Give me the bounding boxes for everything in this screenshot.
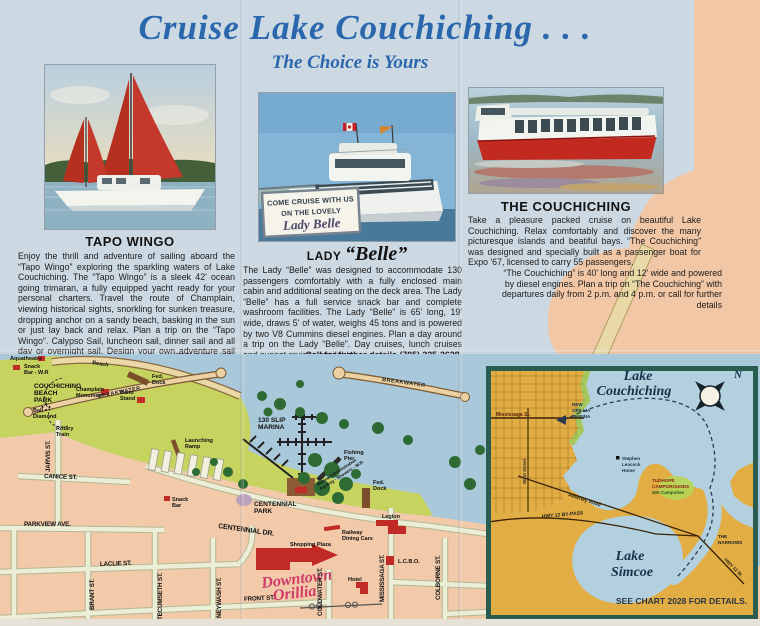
inset-label-simcoe-1: Lake <box>615 549 645 564</box>
map-label-shopping-plaza: Shopping Plaza <box>290 542 332 548</box>
inset-title-2: Couchiching <box>597 384 672 399</box>
inset-label-tudhope-3: 400 Campsites <box>652 490 685 495</box>
inset-label-simcoe-2: Simcoe <box>611 565 653 580</box>
scan-bottom-edge <box>0 619 760 626</box>
map-label-hotel: Hotel <box>348 577 362 583</box>
map-label-fed-dock-n-2: Dock <box>152 380 166 386</box>
map-label-rotary-2: Train <box>56 432 70 438</box>
inset-label-narrows-2: NARROWS <box>718 540 742 545</box>
inset-label-tudhope-2: CAMPGROUNDS <box>652 484 689 489</box>
sign-line-3: Lady Belle <box>282 215 341 233</box>
map-label-legion: Legion <box>382 514 401 520</box>
inset-label-leacock-1: Stephen <box>622 456 640 461</box>
couchiching-photo <box>468 87 664 194</box>
map-label-park-1: COUCHICHING <box>34 383 81 390</box>
lady-belle-caption-name: “Belle” <box>345 243 407 265</box>
couchiching-description: Take a pleasure packed cruise on beautif… <box>468 215 701 268</box>
inset-label-marina-2: ORILLIA <box>572 408 591 413</box>
street-label-colborne: COLBORNE ST. <box>435 555 442 600</box>
page-title: Cruise Lake Couchiching . . . <box>0 8 730 48</box>
map-label-park-2: BEACH <box>34 390 58 397</box>
stadium-oval <box>236 494 252 506</box>
inset-label-leacock-2: Leacock <box>622 462 641 467</box>
map-label-marina-1: 130 SLIP <box>258 417 286 424</box>
map-label-centennial-park-2: PARK <box>254 508 272 515</box>
lady-belle-description: The Lady “Belle” was designed to accommo… <box>243 265 462 360</box>
street-label-neywash: NEYWASH ST. <box>216 577 223 618</box>
map-label-centennial-park-1: CENTENNIAL <box>254 501 297 508</box>
map-label-park-3: PARK <box>34 397 52 404</box>
map-label-snack-bar-wr-2: Bar - W.R <box>24 370 48 376</box>
map-label-launching-ramp-2: Ramp <box>185 444 201 450</box>
map-label-snack-bar-s-2: Bar <box>172 503 182 509</box>
brochure-page: Cruise Lake Couchiching . . . The Choice… <box>0 0 760 626</box>
inset-area-map: N Lake Couchiching Mississaga St. NEW OR… <box>486 366 758 620</box>
street-label-laclie: LACLIE ST. <box>100 560 132 568</box>
inset-title-1: Lake <box>623 369 653 384</box>
map-label-aquatheatre: Aquatheatre <box>10 356 42 362</box>
inset-label-see-chart: SEE CHART 2028 FOR DETAILS. <box>616 596 747 606</box>
map-label-marina-2: MARINA <box>258 424 285 431</box>
street-label-brant: BRANT ST. <box>89 578 96 610</box>
come-cruise-sign: COME CRUISE WITH US ON THE LOVELY Lady B… <box>262 188 360 237</box>
couchiching-illustration <box>469 88 664 194</box>
sailboat-illustration <box>45 65 215 229</box>
map-label-lcbo: L.C.B.O. <box>398 559 420 565</box>
tapo-wingo-caption: TAPO WINGO <box>44 234 216 249</box>
couchiching-caption: THE COUCHICHING <box>468 199 664 214</box>
inset-label-marina-3: MARINA <box>572 414 591 419</box>
fold-crease-horizontal <box>0 350 760 353</box>
inset-label-mississaga: Mississaga St. <box>496 412 531 418</box>
lady-belle-illustration: COME CRUISE WITH US ON THE LOVELY Lady B… <box>259 93 456 242</box>
inset-label-narrows-1: THE <box>718 534 727 539</box>
inset-label-west-street: West Street <box>522 458 527 484</box>
canada-flag-icon <box>343 123 356 131</box>
couchiching-description-wrap: “The Couchiching” is 40' long and 12' wi… <box>500 268 722 310</box>
street-label-coldwater: COLDWATER ST. <box>317 567 324 616</box>
lady-belle-caption-prefix: LADY <box>307 249 341 263</box>
leacock-marker <box>616 456 620 460</box>
inset-label-leacock-3: Home <box>622 468 635 473</box>
street-label-jarvis: JARVIS ST. <box>45 440 52 472</box>
map-label-railway-2: Dining Cars <box>342 536 373 542</box>
map-label-ball-diamond-2: Diamond <box>33 414 57 420</box>
inset-label-marina-1: NEW <box>572 402 583 407</box>
street-label-tecumseth: TECUMSETH ST. <box>157 572 164 620</box>
map-label-fed-dock-s-2: Dock <box>373 486 387 492</box>
street-label-canice: CANICE ST. <box>44 473 78 481</box>
lady-belle-caption: LADY “Belle” <box>258 243 456 266</box>
map-label-bandstand-2: Stand <box>120 396 135 402</box>
tapo-wingo-photo <box>44 64 216 230</box>
street-label-parkview: PARKVIEW AVE. <box>24 521 71 528</box>
boat-group <box>475 104 657 160</box>
street-label-mississaga: MISSISSAGA ST. <box>379 554 386 602</box>
lady-belle-photo: COME CRUISE WITH US ON THE LOVELY Lady B… <box>258 92 456 242</box>
inset-label-tudhope-1: TUDHOPE <box>652 478 674 483</box>
